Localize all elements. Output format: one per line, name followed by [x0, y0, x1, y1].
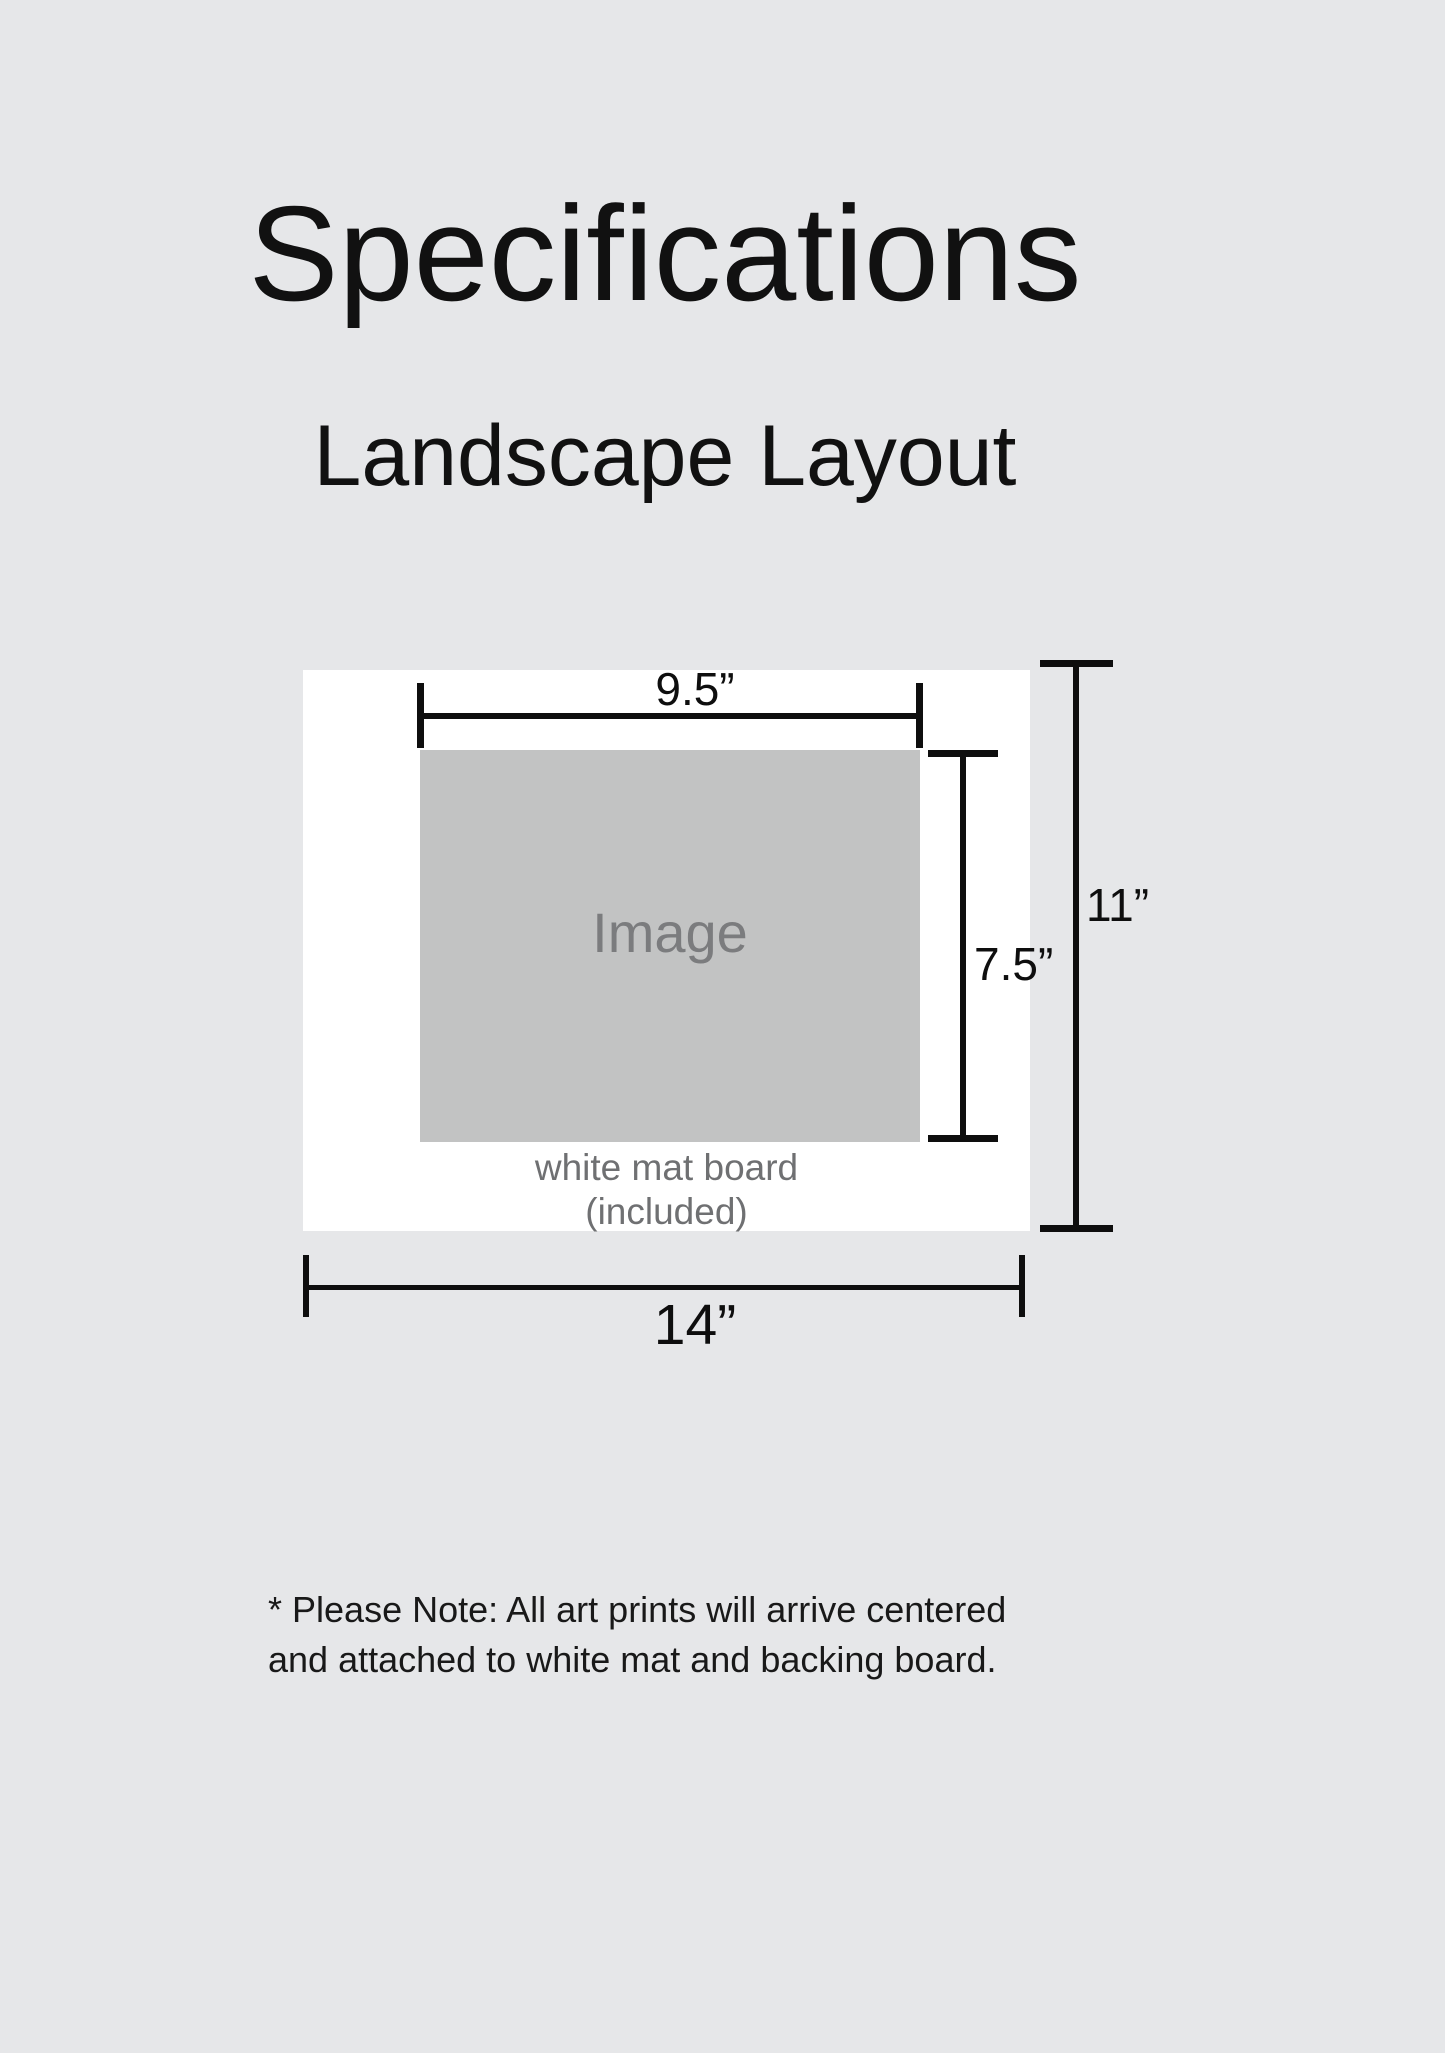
page-title: Specifications [0, 186, 1330, 321]
mat-board-label: white mat board (included) [303, 1146, 1030, 1234]
note-line1: * Please Note: All art prints will arriv… [268, 1585, 1006, 1635]
mat-board-label-line1: white mat board [303, 1146, 1030, 1190]
dimension-mat-width-line [305, 1285, 1022, 1290]
dimension-mat-width-label: 14” [445, 1297, 945, 1354]
dimension-image-height-line [960, 753, 966, 1142]
dimension-image-height-tick-top [928, 750, 998, 757]
page-background: Specifications Landscape Layout Image wh… [0, 0, 1445, 2053]
note-line2: and attached to white mat and backing bo… [268, 1635, 1006, 1685]
image-label: Image [420, 905, 920, 961]
dimension-mat-height-label: 11” [1086, 882, 1149, 928]
note: * Please Note: All art prints will arriv… [268, 1585, 1006, 1685]
dimension-mat-width-tick-right [1019, 1255, 1025, 1317]
mat-board-label-line2: (included) [303, 1190, 1030, 1234]
page-subtitle: Landscape Layout [0, 413, 1330, 499]
dimension-image-width-label: 9.5” [445, 666, 945, 712]
dimension-image-height-tick-bottom [928, 1135, 998, 1142]
dimension-mat-height-tick-top [1040, 660, 1113, 667]
dimension-image-height-label: 7.5” [974, 941, 1053, 987]
dimension-mat-height-tick-bottom [1040, 1225, 1113, 1232]
dimension-image-width-tick-left [417, 683, 424, 748]
dimension-mat-width-tick-left [303, 1255, 309, 1317]
dimension-mat-height-line [1073, 663, 1079, 1232]
